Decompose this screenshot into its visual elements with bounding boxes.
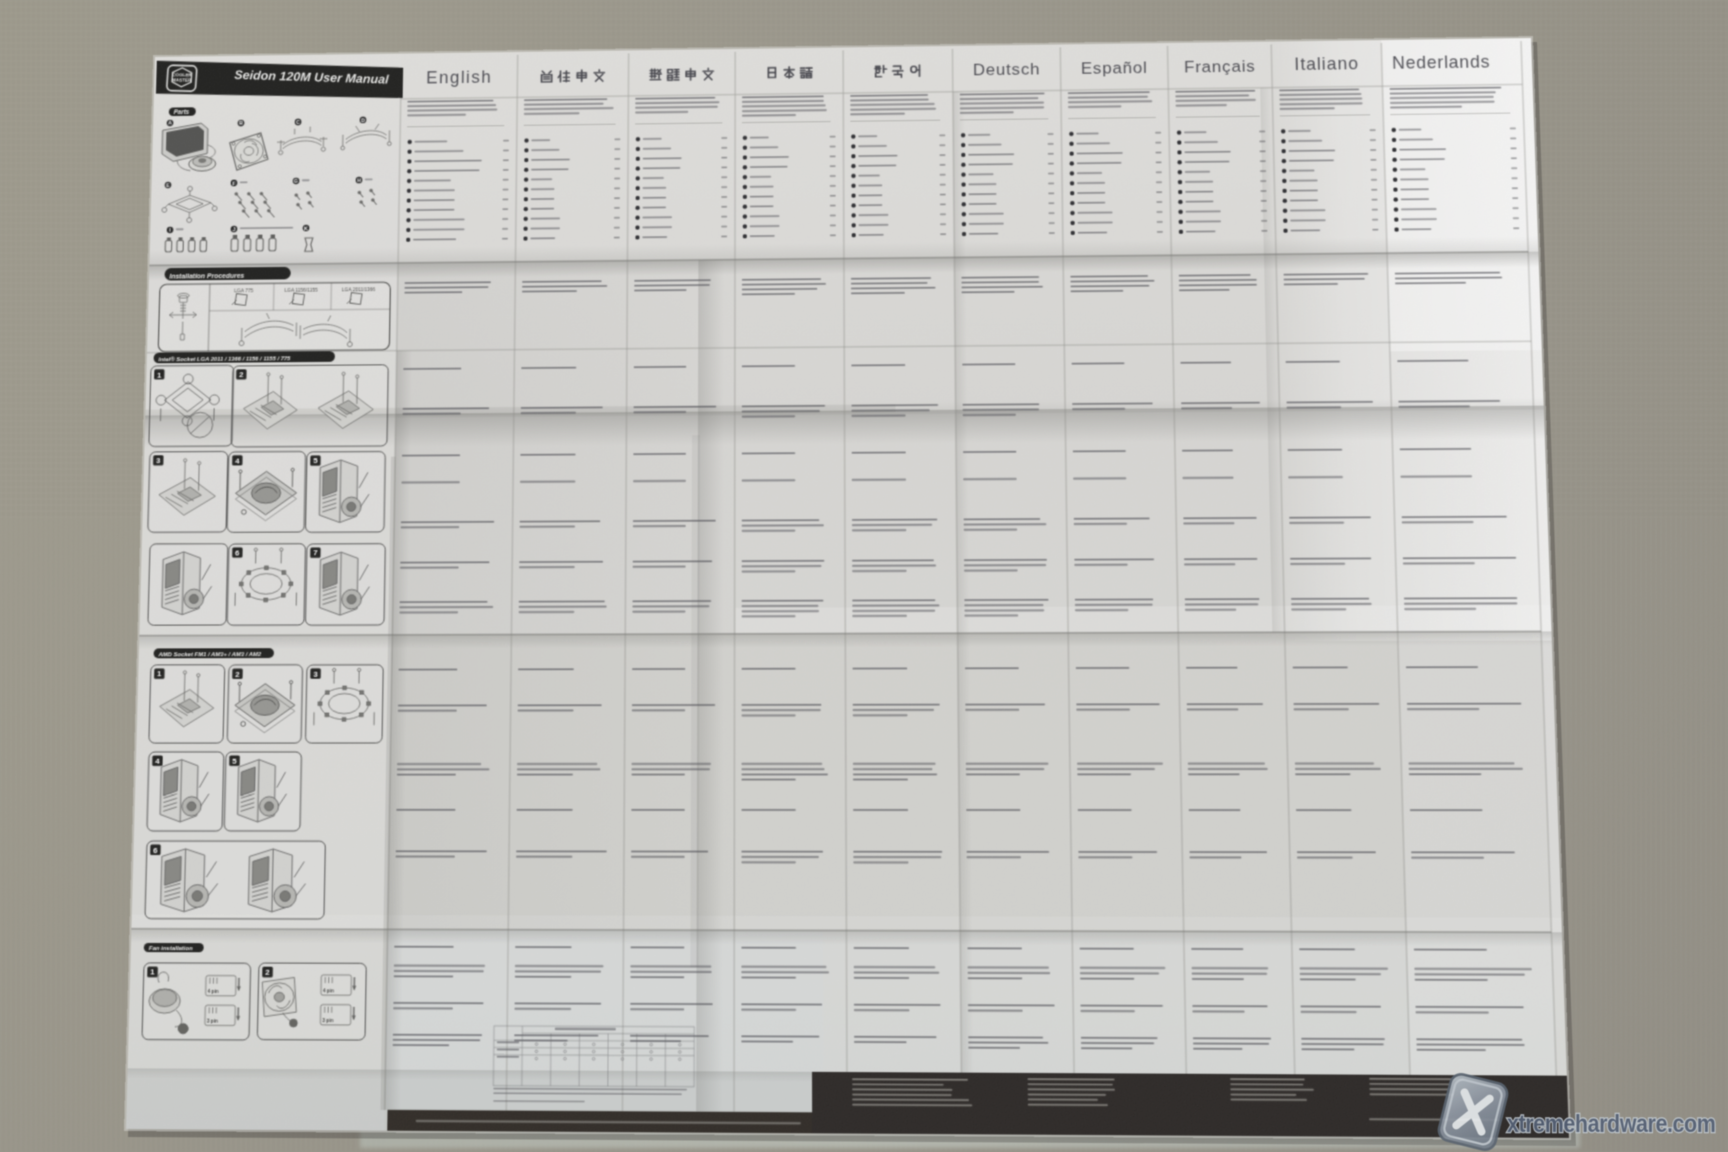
svg-text:D: D — [361, 118, 365, 124]
svg-text:2: 2 — [239, 370, 244, 379]
svg-text:Nederlands: Nederlands — [1392, 52, 1491, 73]
svg-text:Intel® Socket LGA 2011 / 1366: Intel® Socket LGA 2011 / 1366 / 1156 / 1… — [158, 355, 291, 363]
svg-text:AMD Socket FM1 / AM3+ / AM3 /: AMD Socket FM1 / AM3+ / AM3 / AM2 — [157, 652, 262, 659]
svg-text:2: 2 — [235, 669, 240, 678]
svg-text:Français: Français — [1184, 57, 1256, 76]
svg-text:3 pin: 3 pin — [322, 1018, 333, 1023]
svg-text:4 pin: 4 pin — [323, 988, 334, 993]
svg-text:Italiano: Italiano — [1294, 54, 1359, 74]
svg-text:J: J — [232, 227, 235, 233]
svg-text:5: 5 — [313, 456, 318, 465]
svg-text:B: B — [239, 121, 243, 127]
svg-text:xtremehardware.com: xtremehardware.com — [1507, 1109, 1715, 1137]
svg-text:LGA 2011/1366: LGA 2011/1366 — [342, 287, 376, 293]
svg-text:3: 3 — [156, 456, 161, 465]
svg-text:Español: Español — [1081, 59, 1148, 78]
svg-text:K: K — [304, 226, 308, 232]
svg-text:English: English — [426, 68, 492, 88]
svg-text:C: C — [296, 120, 300, 126]
svg-text:1: 1 — [157, 669, 162, 678]
svg-text:3: 3 — [313, 669, 318, 678]
svg-text:3 pin: 3 pin — [207, 1018, 218, 1023]
svg-text:MASTER: MASTER — [172, 77, 192, 82]
svg-text:Parts: Parts — [174, 109, 190, 116]
svg-text:F: F — [232, 181, 235, 187]
svg-text:6: 6 — [235, 548, 240, 557]
svg-text:4 pin: 4 pin — [208, 989, 219, 994]
svg-text:2: 2 — [265, 968, 270, 978]
svg-text:7: 7 — [313, 548, 318, 557]
svg-text:1: 1 — [157, 370, 162, 379]
svg-text:A: A — [168, 121, 172, 127]
svg-text:Installation Procedures: Installation Procedures — [169, 273, 244, 281]
svg-text:H: H — [357, 178, 361, 184]
svg-text:5: 5 — [232, 756, 237, 766]
svg-text:1: 1 — [150, 967, 155, 977]
svg-text:LGA 1156/1155: LGA 1156/1155 — [284, 287, 318, 293]
svg-text:6: 6 — [153, 845, 158, 855]
svg-text:G: G — [294, 179, 298, 185]
svg-text:Fan installation: Fan installation — [149, 946, 193, 953]
svg-text:Deutsch: Deutsch — [973, 60, 1040, 79]
